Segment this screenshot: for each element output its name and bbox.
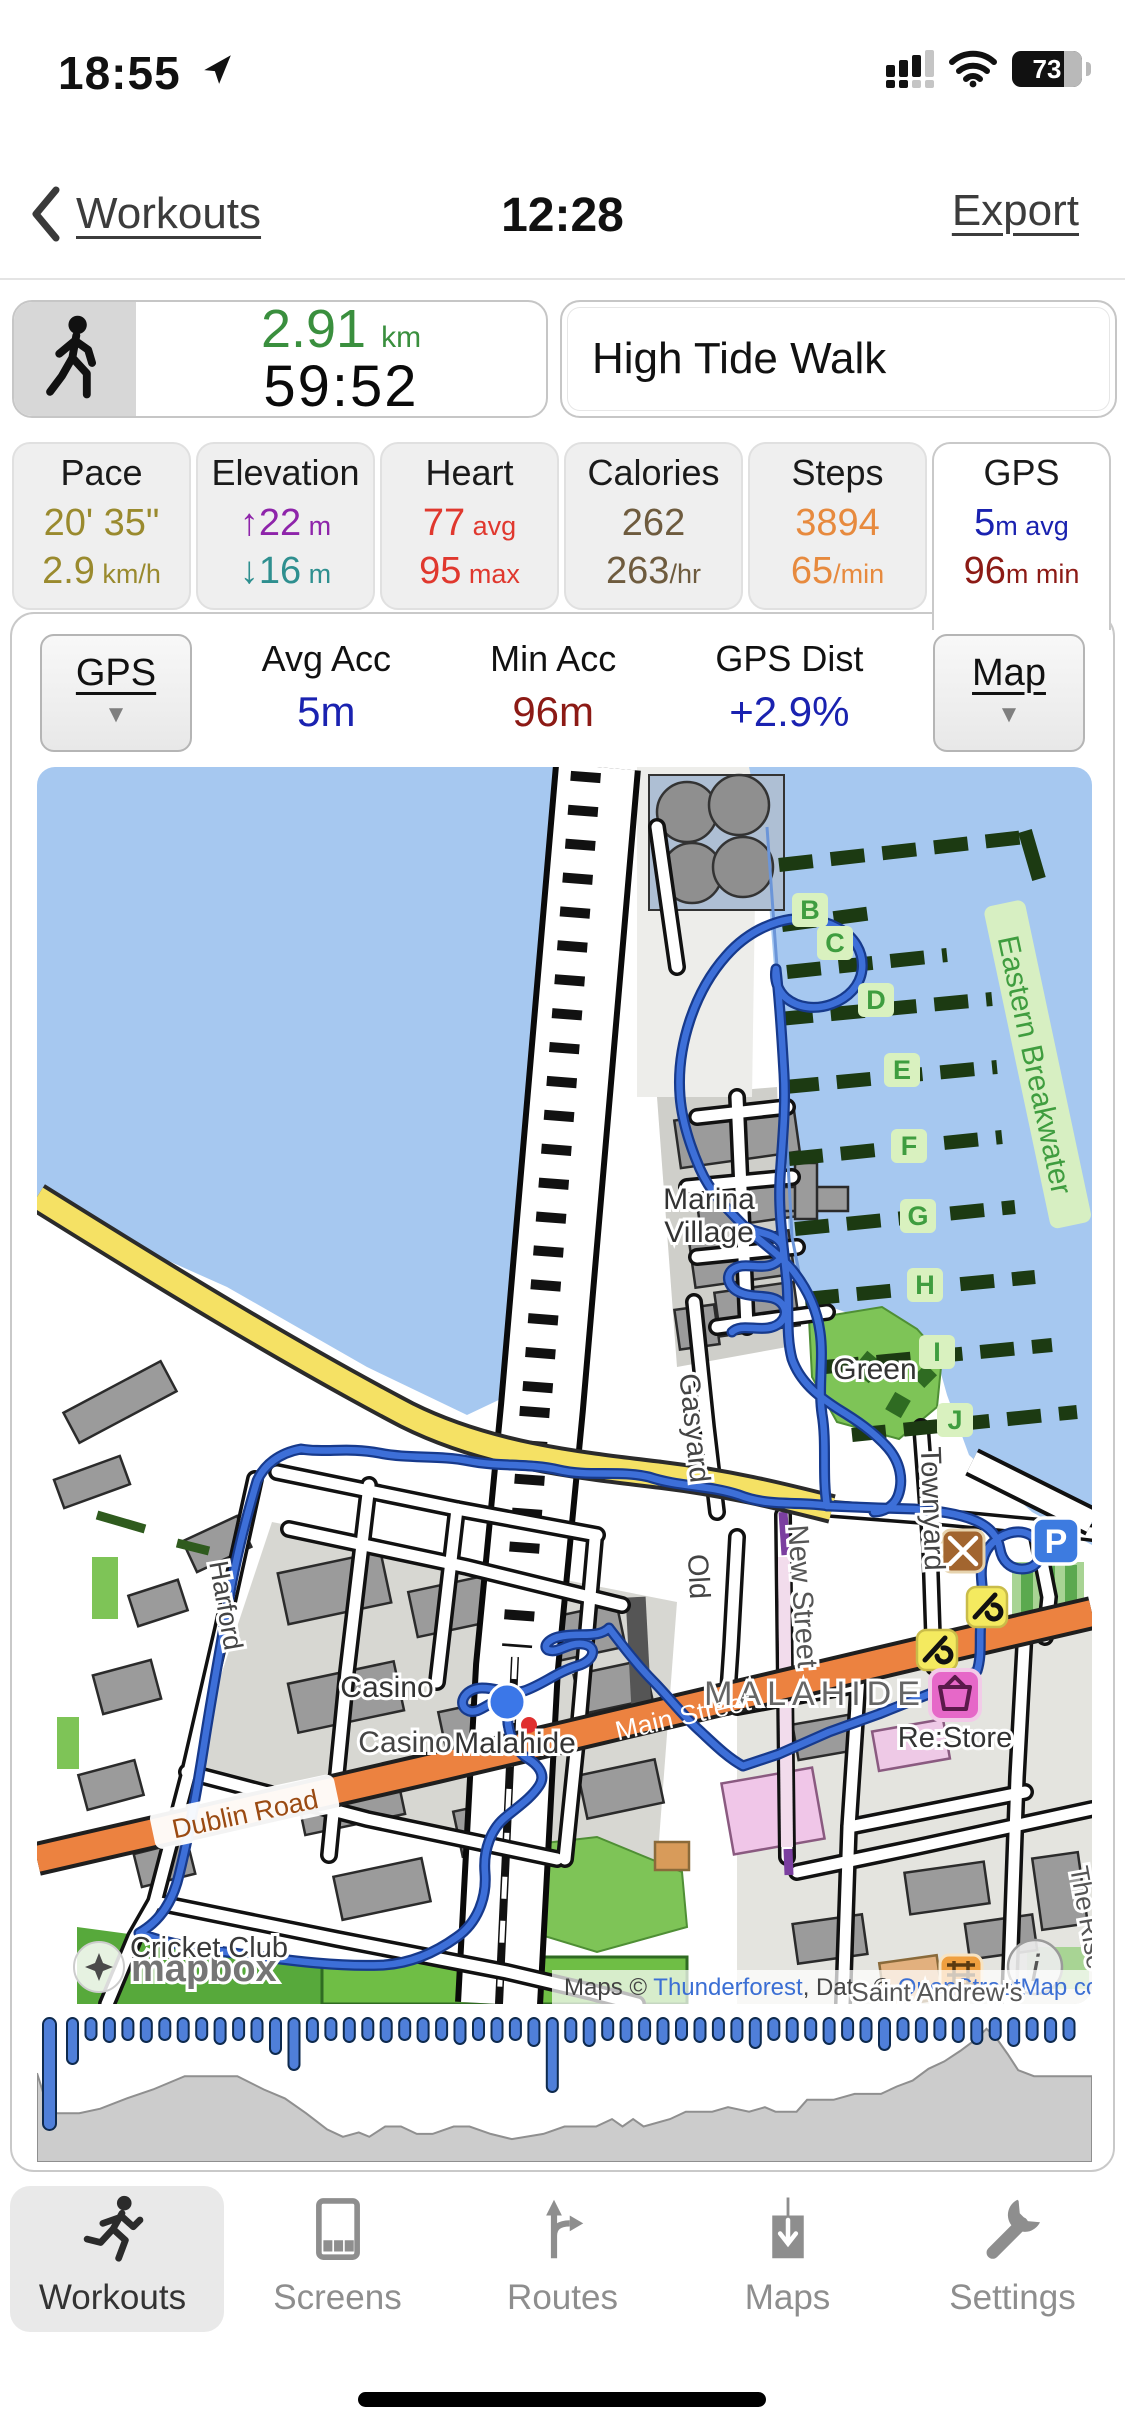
accuracy-marker [547, 2018, 558, 2092]
cellular-signal-icon [886, 50, 934, 88]
map-label: Casino [340, 1671, 433, 1704]
map-dropdown-button[interactable]: Map ▼ [933, 634, 1085, 752]
accuracy-marker [233, 2018, 244, 2040]
stat-card-pace[interactable]: Pace20' 35"2.9 km/h [12, 442, 191, 610]
screens-icon [225, 2190, 450, 2268]
accuracy-marker [418, 2018, 429, 2042]
stat-value: 3894 [750, 500, 925, 548]
accuracy-marker [436, 2018, 447, 2040]
gps-panel: GPS ▼ Avg Acc5mMin Acc96mGPS Dist+2.9% M… [10, 612, 1115, 2172]
distance-value: 2.91 km [261, 302, 421, 357]
accuracy-marker [1027, 2018, 1038, 2040]
stat-label: Elevation [198, 452, 373, 494]
gps-dropdown-button[interactable]: GPS ▼ [40, 634, 192, 752]
accuracy-marker [492, 2018, 503, 2042]
export-button[interactable]: Export [952, 186, 1079, 236]
stat-value: 95 max [382, 548, 557, 596]
accuracy-marker [104, 2018, 115, 2042]
tab-label: Maps [675, 2278, 900, 2318]
svg-text:P: P [1045, 1523, 1068, 1561]
stat-value: 96m min [934, 548, 1109, 596]
accuracy-marker [215, 2018, 226, 2044]
routes-icon [450, 2190, 675, 2268]
stat-value: 65/min [750, 548, 925, 596]
accuracy-marker [528, 2018, 539, 2046]
stat-card-heart[interactable]: Heart77 avg95 max [380, 442, 559, 610]
accuracy-marker [768, 2018, 779, 2040]
accuracy-marker [953, 2018, 964, 2042]
accuracy-marker [602, 2018, 613, 2040]
tab-label: Routes [450, 2278, 675, 2318]
shop-icon [930, 1670, 980, 1720]
tab-screens[interactable]: Screens [225, 2190, 450, 2318]
workout-detail-screen: 18:55 73 Workouts 12:28 Export [0, 0, 1125, 2436]
accuracy-marker [639, 2018, 650, 2040]
map-dropdown-label: Map [935, 652, 1083, 695]
stat-card-gps[interactable]: GPS5m avg96m min [932, 442, 1111, 630]
accuracy-marker [621, 2018, 632, 2042]
current-location-dot [489, 1684, 525, 1720]
accuracy-marker [916, 2018, 927, 2042]
accuracy-marker [141, 2018, 152, 2042]
stat-value: 262 [566, 500, 741, 548]
elevation-accuracy-chart[interactable] [37, 2014, 1092, 2162]
workout-summary-card[interactable]: 2.91 km 59:52 [12, 300, 548, 418]
accuracy-marker [750, 2018, 761, 2048]
stat-card-calories[interactable]: Calories262263/hr [564, 442, 743, 610]
map-label: Re:Store [898, 1722, 1012, 1754]
gps-summary-gps-dist: GPS Dist+2.9% [715, 638, 863, 748]
accuracy-marker [824, 2018, 835, 2044]
settings-icon [900, 2190, 1125, 2268]
accuracy-marker [934, 2018, 945, 2040]
accuracy-marker [325, 2018, 336, 2040]
accuracy-marker [787, 2018, 798, 2042]
marina-berth-label: D [866, 985, 886, 1015]
stat-card-elevation[interactable]: Elevation↑22 m↓16 m [196, 442, 375, 610]
chevron-down-icon: ▼ [42, 701, 190, 729]
accuracy-marker [86, 2018, 97, 2040]
accuracy-max-bar [43, 2018, 56, 2130]
accuracy-marker [252, 2018, 263, 2042]
tab-label: Settings [900, 2278, 1125, 2318]
gps-dropdown-label: GPS [42, 652, 190, 695]
accuracy-marker [731, 2018, 742, 2042]
gps-summary-avg-acc: Avg Acc5m [262, 638, 391, 748]
accuracy-marker [1008, 2018, 1019, 2046]
stat-label: Calories [566, 452, 741, 494]
battery-icon: 73 [1012, 51, 1082, 87]
wifi-icon [948, 50, 998, 88]
marina-berth-label: F [901, 1131, 918, 1161]
stat-label: Steps [750, 452, 925, 494]
accuracy-marker [1064, 2018, 1075, 2040]
stat-value: ↑22 m [198, 500, 373, 548]
maps-icon [675, 2190, 900, 2268]
stat-value: 263/hr [566, 548, 741, 596]
stat-value: 77 avg [382, 500, 557, 548]
tab-label: Screens [225, 2278, 450, 2318]
stat-label: Pace [14, 452, 189, 494]
tab-workouts[interactable]: Workouts [0, 2190, 225, 2318]
home-indicator[interactable] [358, 2392, 766, 2407]
accuracy-marker [196, 2018, 207, 2040]
marina-berth-label: J [947, 1405, 962, 1435]
accuracy-marker [695, 2018, 706, 2042]
stat-card-steps[interactable]: Steps389465/min [748, 442, 927, 610]
tab-bar: WorkoutsScreensRoutesMapsSettings [0, 2186, 1125, 2346]
gps-summary-min-acc: Min Acc96m [490, 638, 616, 748]
tab-settings[interactable]: Settings [900, 2190, 1125, 2318]
status-icons: 73 [886, 50, 1091, 88]
accuracy-marker [122, 2018, 133, 2040]
map-label: Marina [663, 1183, 755, 1216]
walking-icon [14, 302, 136, 416]
accuracy-marker [362, 2018, 373, 2040]
stat-value: 2.9 km/h [14, 548, 189, 596]
location-arrow-icon [200, 52, 234, 86]
marina-berth-label: C [825, 928, 845, 958]
accuracy-marker [455, 2018, 466, 2044]
map-label: Old [681, 1553, 715, 1600]
runner-icon [0, 2190, 225, 2268]
marina-berth-label: I [933, 1337, 941, 1367]
stat-value: ↓16 m [198, 548, 373, 596]
duration-value: 59:52 [263, 357, 418, 416]
accuracy-marker [307, 2018, 318, 2042]
stat-label: Heart [382, 452, 557, 494]
route-map[interactable]: P [37, 767, 1092, 2004]
accuracy-marker [159, 2018, 170, 2040]
map-label: Saint Andrew's [851, 1977, 1022, 2004]
map-label: Casino [358, 1726, 451, 1759]
accuracy-marker [990, 2018, 1001, 2040]
accuracy-marker [842, 2018, 853, 2040]
accuracy-marker [565, 2018, 576, 2042]
gps-summary-strip: Avg Acc5mMin Acc96mGPS Dist+2.9% [212, 638, 913, 748]
map-label: Village [664, 1216, 754, 1249]
chevron-down-icon: ▼ [935, 701, 1083, 729]
accuracy-marker [861, 2018, 872, 2042]
accuracy-marker [805, 2018, 816, 2040]
map-label: Green [833, 1353, 916, 1386]
status-time: 18:55 [58, 46, 181, 100]
nav-bar: Workouts 12:28 Export [0, 160, 1125, 280]
accuracy-marker [399, 2018, 410, 2040]
accuracy-marker [676, 2018, 687, 2040]
accuracy-marker [178, 2018, 189, 2042]
accuracy-marker [270, 2018, 281, 2054]
accuracy-marker [879, 2018, 890, 2050]
tab-maps[interactable]: Maps [675, 2190, 900, 2318]
stat-value: 5m avg [934, 500, 1109, 548]
map-label: Townyard [914, 1446, 950, 1571]
marina-berth-label: E [893, 1055, 911, 1085]
accuracy-marker [713, 2018, 724, 2040]
accuracy-marker [344, 2018, 355, 2042]
parking-icon: P [1033, 1518, 1079, 1564]
workout-title-field-wrap [560, 300, 1117, 418]
stats-row: Pace20' 35"2.9 km/hElevation↑22 m↓16 mHe… [12, 442, 1113, 632]
pub-icon [967, 1587, 1007, 1627]
tab-label: Workouts [0, 2278, 225, 2318]
map-label: Cricket Club [130, 1932, 288, 1964]
summary-values: 2.91 km 59:52 [136, 302, 546, 416]
elevation-profile [37, 2029, 1092, 2162]
accuracy-marker [289, 2018, 300, 2070]
marina-berth-label: H [915, 1270, 935, 1300]
tab-routes[interactable]: Routes [450, 2190, 675, 2318]
accuracy-marker [381, 2018, 392, 2042]
stat-value: 20' 35" [14, 500, 189, 548]
battery-nub [1086, 62, 1091, 76]
map-label: Malahide [454, 1727, 576, 1760]
accuracy-marker [584, 2018, 595, 2046]
accuracy-marker [510, 2018, 521, 2040]
stat-label: GPS [934, 452, 1109, 494]
marina-berth-label: B [800, 895, 820, 925]
accuracy-marker [473, 2018, 484, 2040]
accuracy-marker [1045, 2018, 1056, 2042]
workout-title-input[interactable] [562, 333, 1115, 385]
marina-berth-label: G [907, 1201, 928, 1231]
accuracy-marker [67, 2018, 78, 2064]
accuracy-marker [898, 2018, 909, 2040]
accuracy-marker [971, 2018, 982, 2044]
accuracy-marker [658, 2018, 669, 2044]
pub-icon [917, 1630, 957, 1670]
